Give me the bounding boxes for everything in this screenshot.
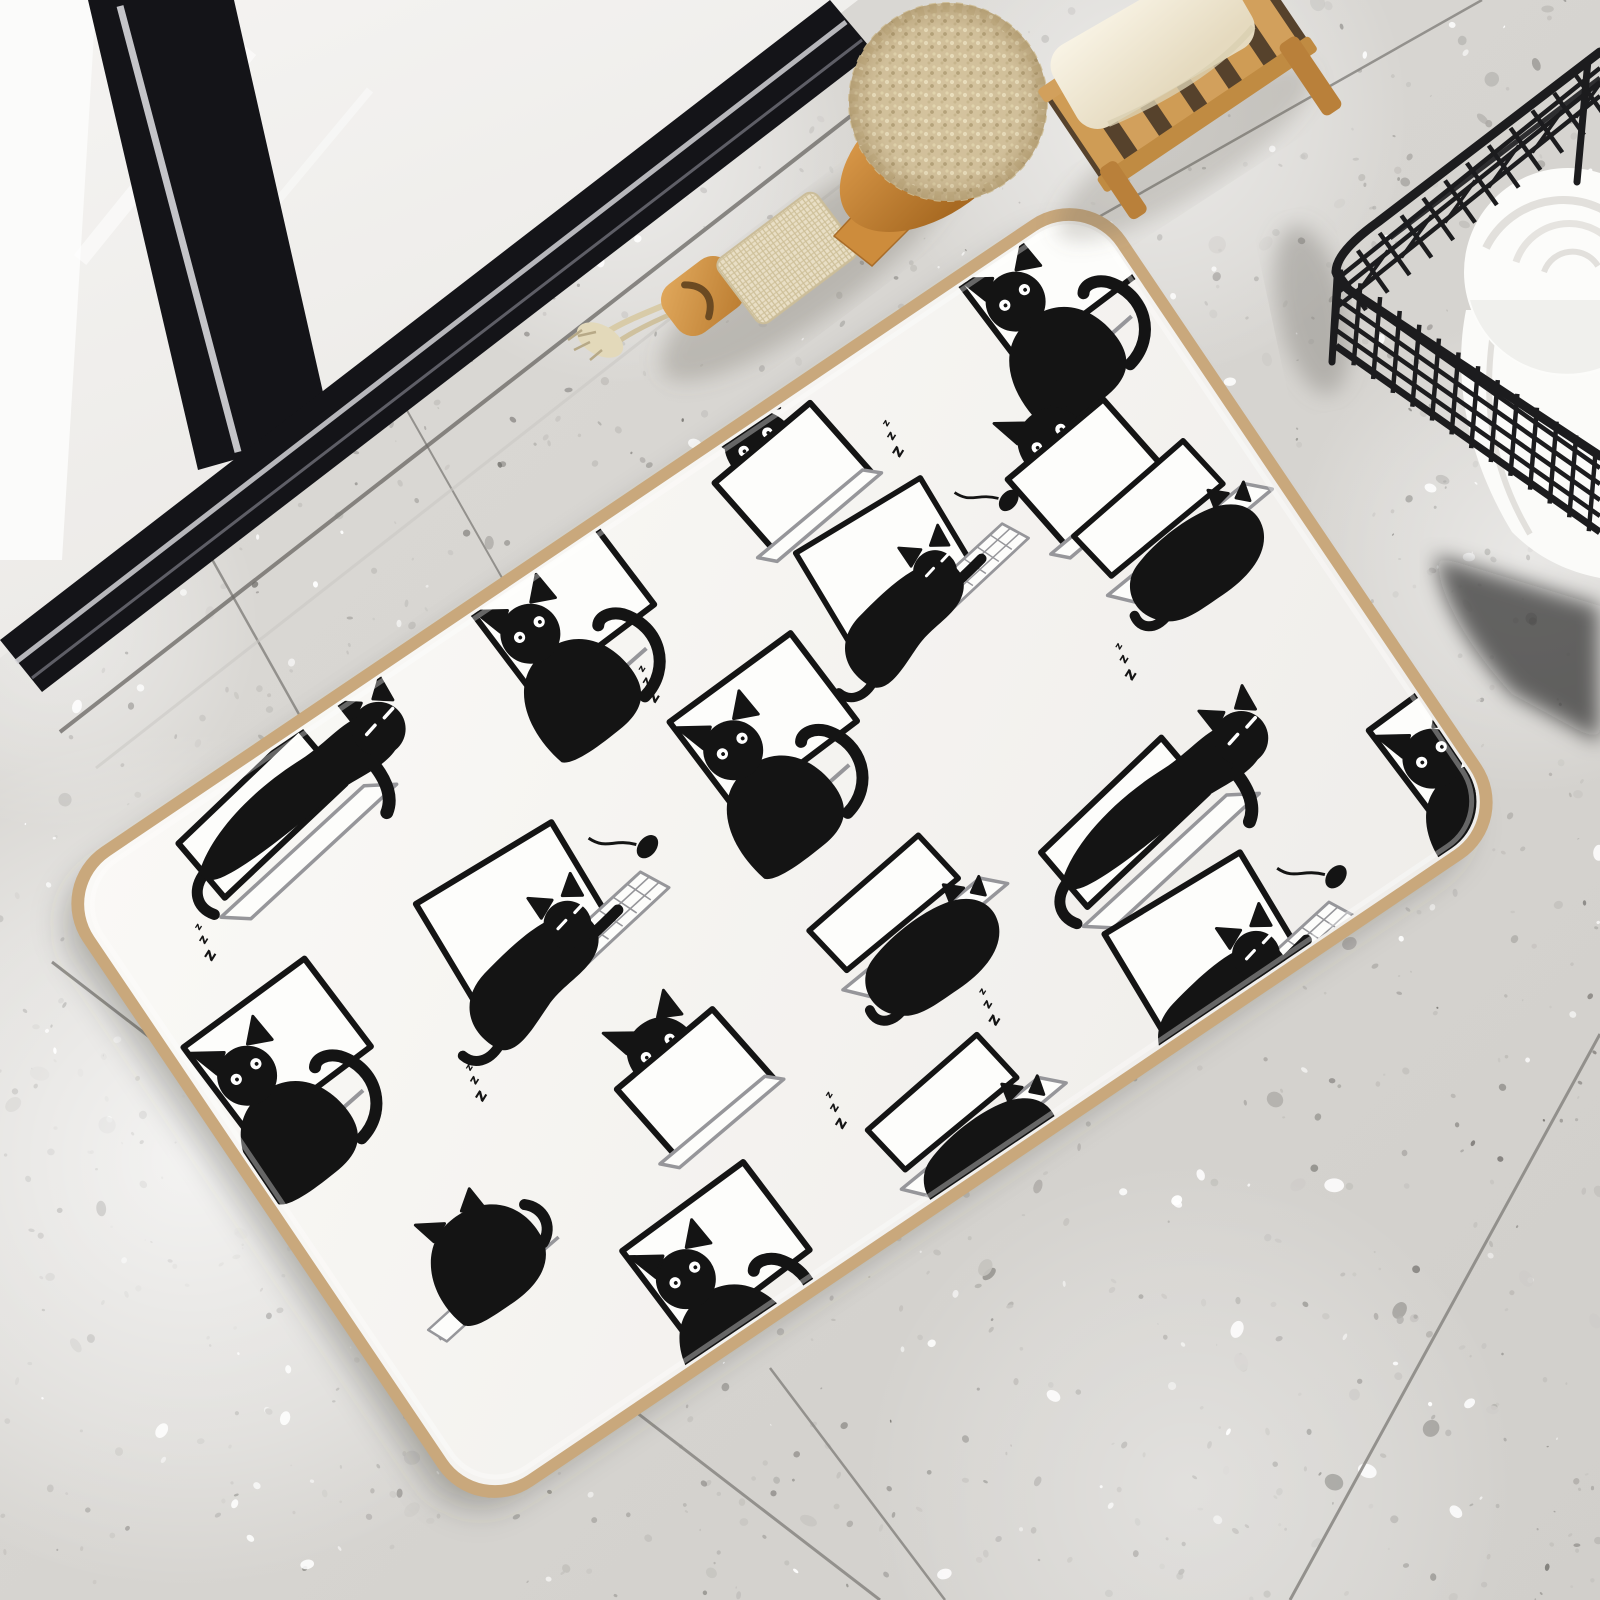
scene-canvas: zzzzzzzzzzzzzzzzzzzzzzzz xyxy=(0,0,1600,1600)
speckle xyxy=(256,534,259,540)
speckle xyxy=(1541,6,1553,13)
bathroom-scene-photo: zzzzzzzzzzzzzzzzzzzzzzzz xyxy=(0,0,1600,1600)
speckle xyxy=(770,1490,776,1496)
speckle xyxy=(397,620,402,627)
basket-corner-post xyxy=(1332,278,1337,362)
brush-bristle-shade xyxy=(849,3,1047,201)
